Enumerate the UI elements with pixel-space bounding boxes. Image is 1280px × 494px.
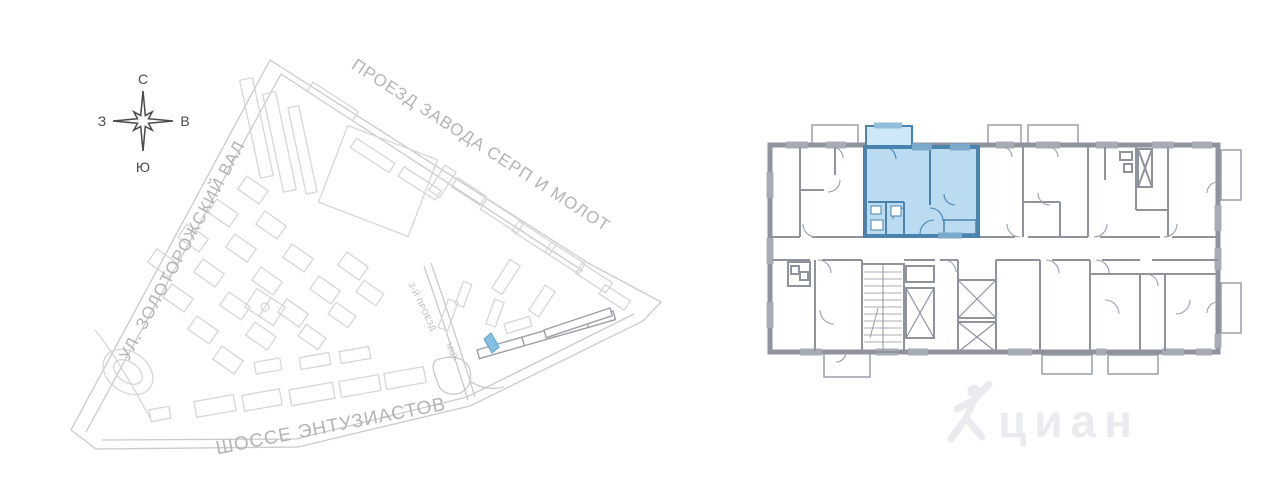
street-label-bottom: ШОССЕ ЭНТУЗИАСТОВ	[214, 394, 448, 459]
building-outer-wall	[770, 145, 1218, 352]
compass-south-label: Ю	[136, 159, 150, 175]
listing-plan-image: ПРОЕЗД ЗАВОДА СЕРП И МОЛОТ УЛ. ЗОЛОТОРОЖ…	[0, 0, 1280, 494]
street-label-small: 3-Й ПРОЕЗД	[407, 281, 438, 332]
watermark-text: циан	[998, 395, 1140, 447]
compass-north-label: С	[138, 71, 148, 87]
person-icon	[951, 384, 989, 439]
highlighted-apartment	[865, 123, 978, 239]
plan-and-map-graphic: ПРОЕЗД ЗАВОДА СЕРП И МОЛОТ УЛ. ЗОЛОТОРОЖ…	[0, 0, 1280, 494]
location-map: ПРОЕЗД ЗАВОДА СЕРП И МОЛОТ УЛ. ЗОЛОТОРОЖ…	[71, 55, 661, 459]
floor-plan: циан	[767, 123, 1242, 448]
cian-watermark: циан	[951, 384, 1140, 447]
compass-east-label: В	[180, 113, 189, 129]
map-roads	[71, 60, 661, 449]
compass-west-label: З	[98, 113, 106, 129]
compass-rose-icon: С Ю З В	[98, 71, 190, 175]
